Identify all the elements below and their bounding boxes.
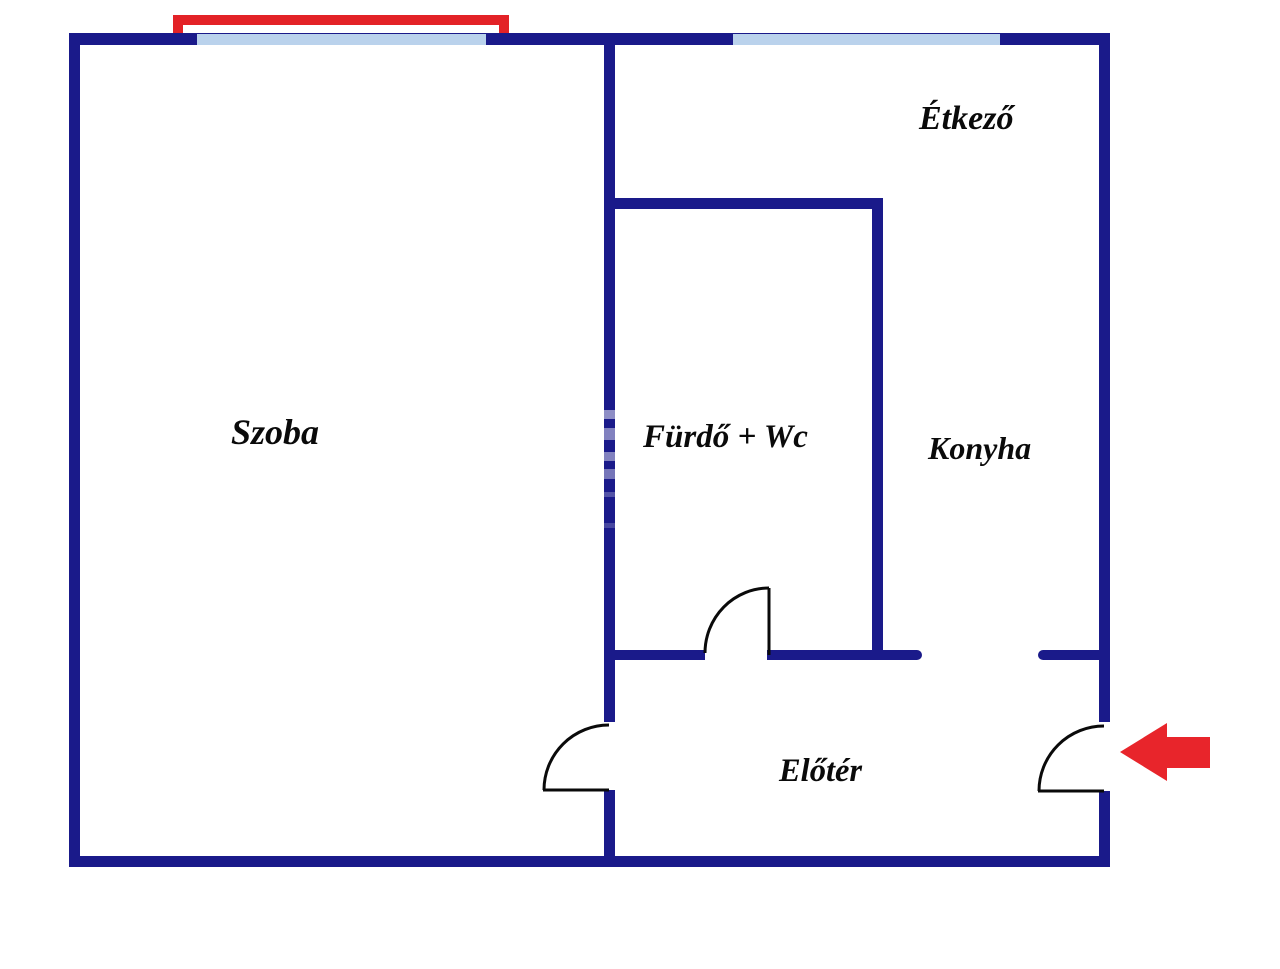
- svg-text:Étkező: Étkező: [918, 100, 1015, 137]
- svg-text:Konyha: Konyha: [927, 430, 1031, 466]
- svg-text:Előtér: Előtér: [778, 753, 862, 789]
- svg-text:Szoba: Szoba: [231, 412, 319, 452]
- svg-text:Fürdő + Wc: Fürdő + Wc: [642, 419, 808, 455]
